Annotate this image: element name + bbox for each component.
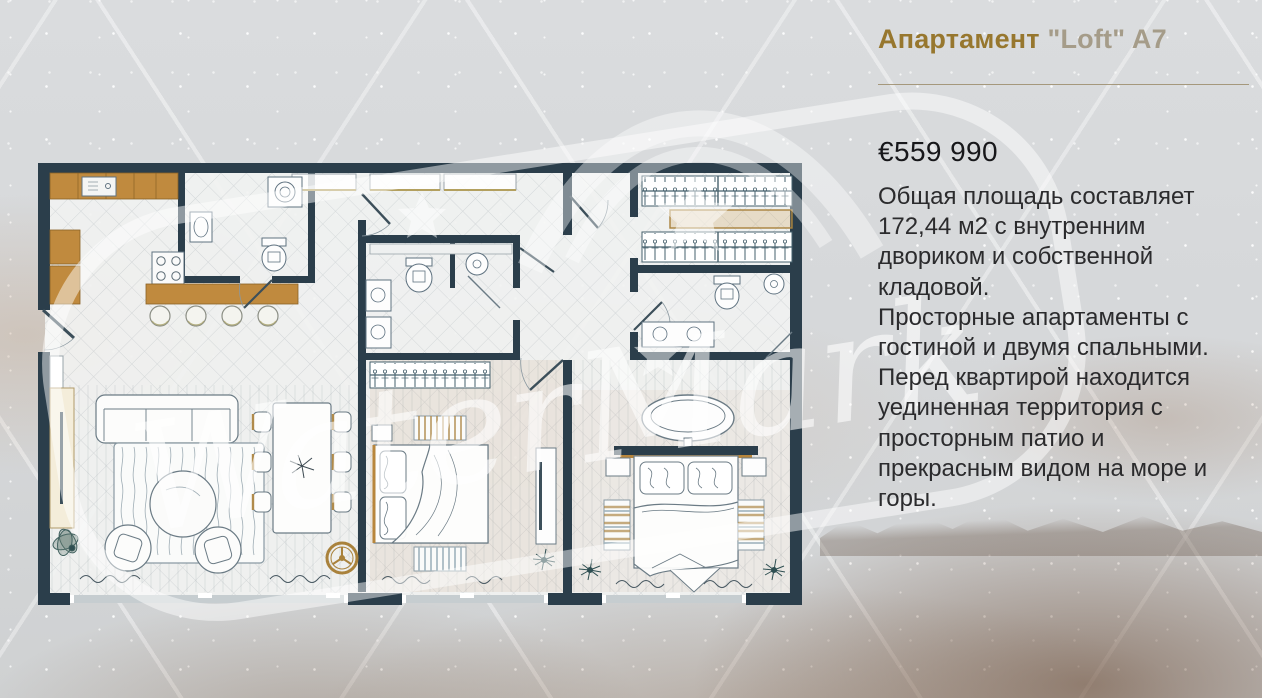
description: Общая площадь составляет 172,44 м2 с вну… (878, 182, 1260, 514)
headboard-wall (614, 446, 758, 455)
rug (604, 500, 630, 550)
nightstand (606, 458, 630, 476)
hallway-shelves (292, 174, 516, 190)
floorplan-drawing (30, 160, 810, 610)
description-line: Общая площадь составляет (878, 182, 1260, 212)
armchair (105, 525, 151, 571)
nightstand (372, 425, 392, 441)
description-line: Перед квартирой находится (878, 363, 1260, 393)
description-line: кладовой. (878, 273, 1260, 303)
rug (414, 547, 466, 571)
title-accent: Апартамент (878, 24, 1040, 54)
page-title: Апартамент "Loft" A7 (878, 24, 1167, 55)
rug (738, 500, 764, 550)
description-line: просторным патио и (878, 424, 1260, 454)
price: €559 990 (878, 136, 998, 168)
nightstand (742, 458, 766, 476)
description-line: двориком и собственной (878, 242, 1260, 272)
rug (414, 416, 466, 440)
decor-wheel (327, 543, 357, 573)
description-line: Просторные апартаменты с (878, 303, 1260, 333)
armchair (195, 527, 241, 573)
tv (60, 412, 63, 504)
bed (374, 445, 488, 543)
description-line: прекрасным видом на море и (878, 454, 1260, 484)
title-divider (878, 84, 1249, 85)
description-line: гостиной и двумя спальными. (878, 333, 1260, 363)
title-secondary: "Loft" A7 (1047, 24, 1166, 54)
tv (539, 462, 542, 530)
sofa (96, 395, 238, 443)
description-line: горы. (878, 484, 1260, 514)
listing-page: { "listing": { "title_part1": "Апартамен… (0, 0, 1262, 698)
kitchen-island (146, 284, 298, 304)
description-line: уединенная территория с (878, 393, 1260, 423)
description-line: 172,44 м2 с внутренним (878, 212, 1260, 242)
closet-shelf (670, 210, 792, 228)
coffee-table (150, 471, 216, 537)
